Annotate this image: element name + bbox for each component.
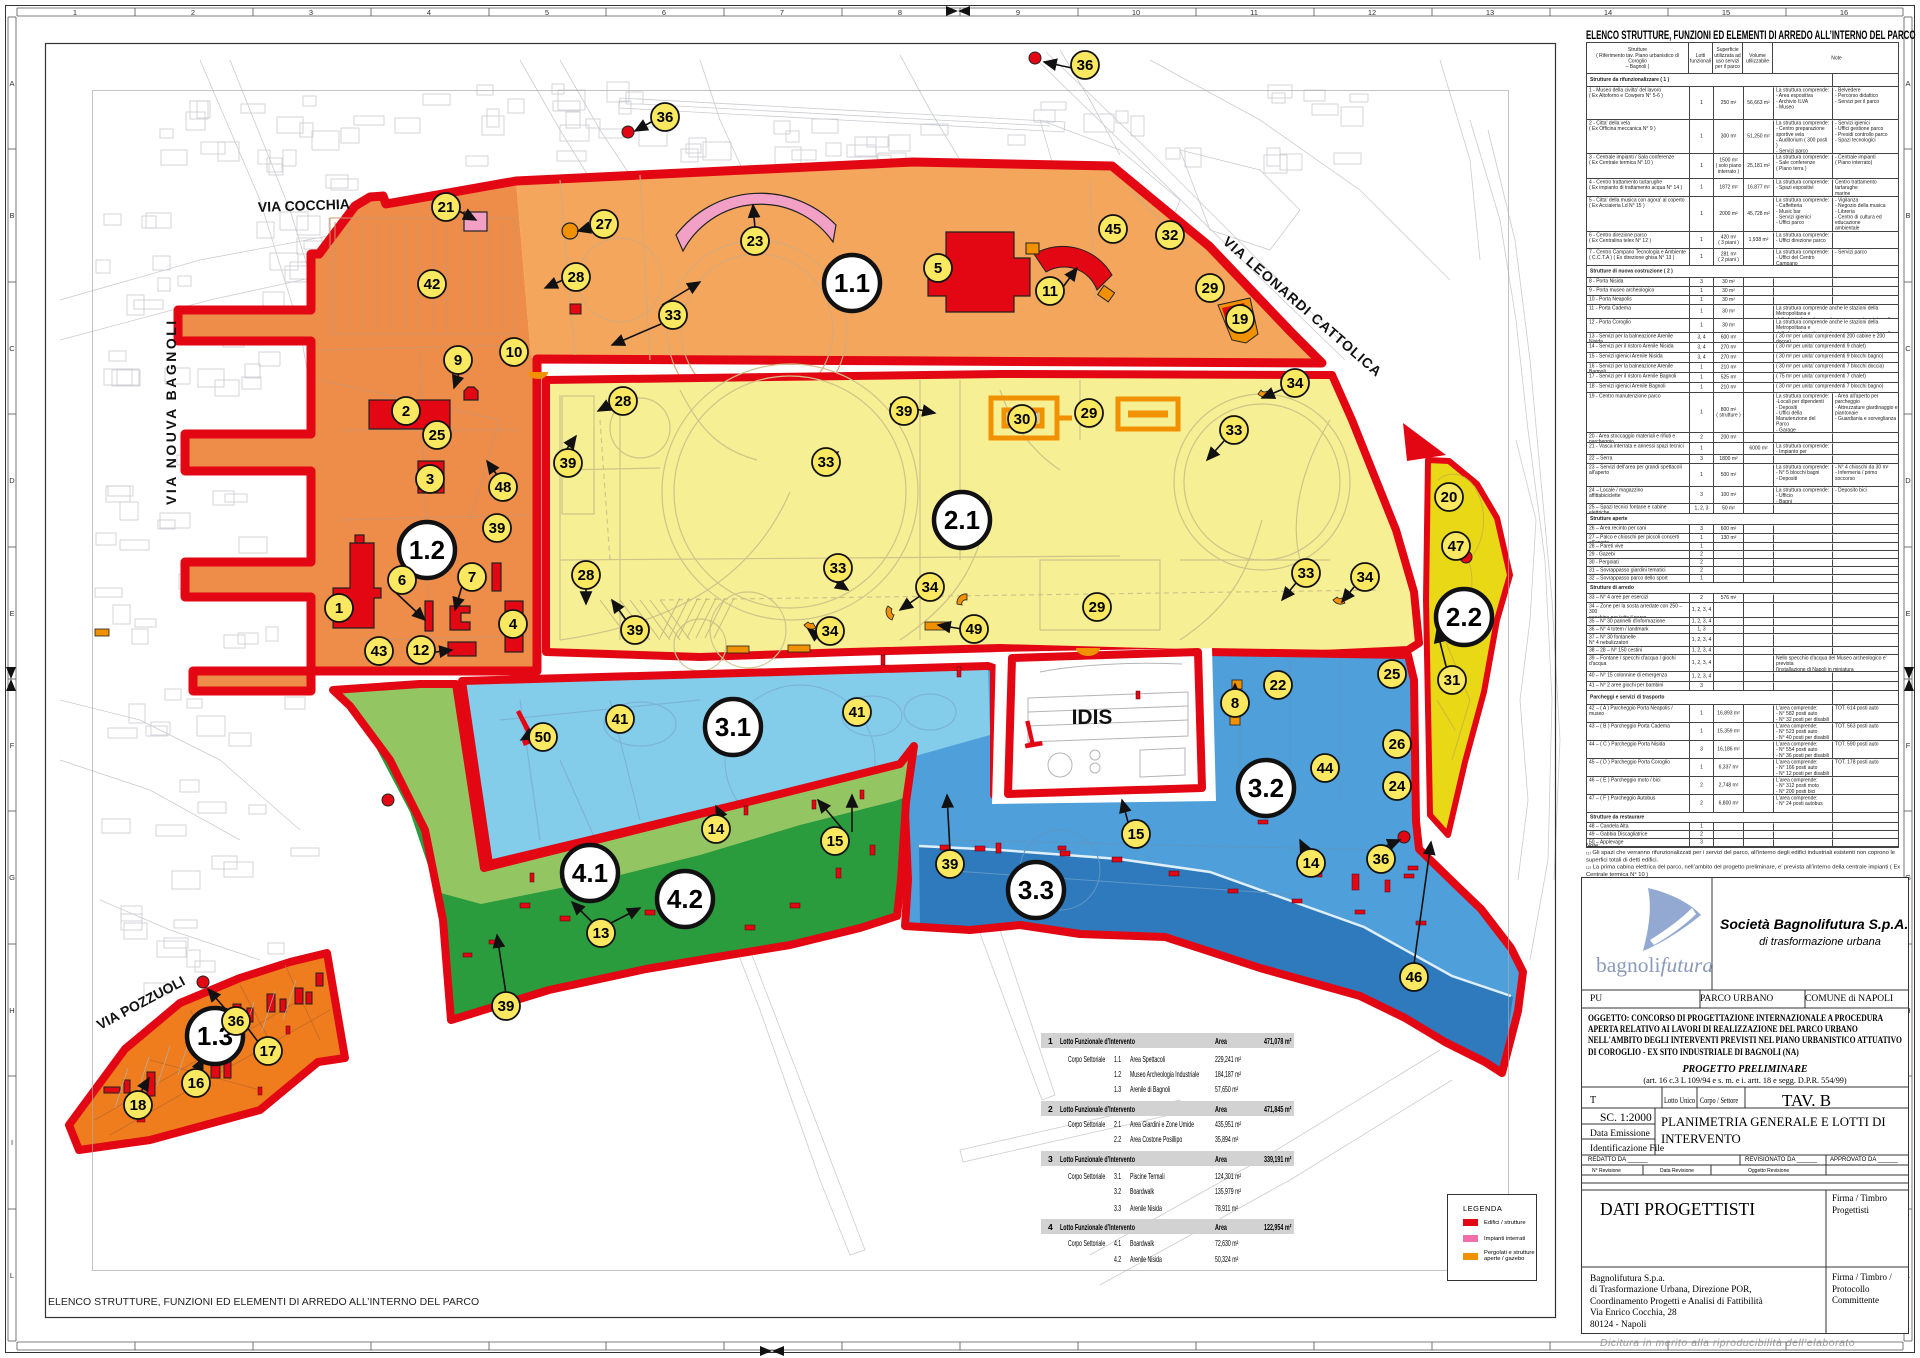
svg-text:L: L xyxy=(10,1271,14,1280)
svg-text:26: 26 xyxy=(1389,736,1406,753)
svg-text:29: 29 xyxy=(1081,405,1098,422)
svg-text:20: 20 xyxy=(1441,489,1458,506)
svg-text:33: 33 xyxy=(1226,422,1243,439)
svg-text:F: F xyxy=(10,741,15,750)
svg-text:H: H xyxy=(9,1006,14,1015)
svg-text:28: 28 xyxy=(578,567,595,584)
svg-text:28: 28 xyxy=(568,269,585,286)
svg-text:4.2: 4.2 xyxy=(667,884,703,914)
svg-text:45: 45 xyxy=(1105,221,1122,238)
svg-text:27: 27 xyxy=(596,216,613,233)
svg-text:14: 14 xyxy=(1303,855,1320,872)
svg-text:A: A xyxy=(9,79,14,88)
svg-text:10: 10 xyxy=(506,344,523,361)
svg-text:2.2: 2.2 xyxy=(1446,602,1482,632)
svg-text:33: 33 xyxy=(830,560,847,577)
svg-text:4.1: 4.1 xyxy=(572,858,608,888)
svg-text:E: E xyxy=(1905,609,1910,618)
svg-text:2.1: 2.1 xyxy=(944,505,980,535)
svg-text:C: C xyxy=(9,344,15,353)
svg-text:36: 36 xyxy=(1077,57,1094,74)
svg-text:4: 4 xyxy=(509,616,518,633)
svg-text:28: 28 xyxy=(615,393,632,410)
svg-text:A: A xyxy=(1905,79,1910,88)
svg-text:22: 22 xyxy=(1270,677,1287,694)
svg-text:44: 44 xyxy=(1317,760,1334,777)
svg-text:VIA NOUVA BAGNOLI: VIA NOUVA BAGNOLI xyxy=(163,318,179,505)
svg-text:2: 2 xyxy=(191,8,195,17)
svg-text:23: 23 xyxy=(747,233,764,250)
svg-text:1.1: 1.1 xyxy=(834,268,870,298)
svg-text:15: 15 xyxy=(1722,8,1730,17)
svg-text:19: 19 xyxy=(1232,311,1249,328)
svg-text:8: 8 xyxy=(898,8,902,17)
svg-text:6: 6 xyxy=(662,8,666,17)
svg-text:3.2: 3.2 xyxy=(1248,773,1284,803)
svg-text:7: 7 xyxy=(780,8,784,17)
svg-text:1: 1 xyxy=(73,8,77,17)
svg-text:18: 18 xyxy=(130,1097,147,1114)
svg-text:14: 14 xyxy=(708,821,725,838)
svg-text:3: 3 xyxy=(426,471,434,488)
svg-text:34: 34 xyxy=(1287,375,1304,392)
svg-text:47: 47 xyxy=(1448,538,1465,555)
svg-text:5: 5 xyxy=(934,260,942,277)
svg-text:21: 21 xyxy=(438,199,455,216)
svg-text:10: 10 xyxy=(1132,8,1140,17)
svg-text:39: 39 xyxy=(560,455,577,472)
svg-text:3.3: 3.3 xyxy=(1018,875,1054,905)
svg-text:25: 25 xyxy=(1384,666,1401,683)
svg-text:8: 8 xyxy=(1231,695,1239,712)
svg-text:34: 34 xyxy=(1357,569,1374,586)
svg-text:39: 39 xyxy=(489,520,506,537)
svg-text:E: E xyxy=(9,609,14,618)
svg-text:36: 36 xyxy=(1373,851,1390,868)
svg-text:42: 42 xyxy=(424,276,441,293)
svg-text:41: 41 xyxy=(849,704,866,721)
svg-text:12: 12 xyxy=(413,642,430,659)
svg-text:3.1: 3.1 xyxy=(715,712,751,742)
svg-text:1.2: 1.2 xyxy=(409,535,445,565)
svg-text:5: 5 xyxy=(545,8,549,17)
svg-text:G: G xyxy=(9,873,15,882)
svg-text:IDIS: IDIS xyxy=(1072,706,1113,729)
svg-text:D: D xyxy=(9,476,15,485)
svg-text:50: 50 xyxy=(535,729,552,746)
svg-text:7: 7 xyxy=(468,569,476,586)
svg-text:43: 43 xyxy=(371,643,388,660)
svg-text:12: 12 xyxy=(1368,8,1376,17)
svg-text:4: 4 xyxy=(427,8,431,17)
svg-text:15: 15 xyxy=(827,833,844,850)
svg-text:I: I xyxy=(11,1138,13,1147)
svg-text:9: 9 xyxy=(454,352,462,369)
svg-text:33: 33 xyxy=(818,454,835,471)
svg-text:B: B xyxy=(9,211,14,220)
svg-text:D: D xyxy=(1905,476,1911,485)
svg-text:3: 3 xyxy=(309,8,313,17)
svg-text:32: 32 xyxy=(1162,227,1179,244)
svg-text:11: 11 xyxy=(1250,8,1258,17)
svg-text:34: 34 xyxy=(922,579,939,596)
svg-text:17: 17 xyxy=(260,1043,277,1060)
svg-text:1: 1 xyxy=(335,600,343,617)
svg-text:14: 14 xyxy=(1604,8,1612,17)
svg-text:9: 9 xyxy=(1016,8,1020,17)
svg-text:F: F xyxy=(1906,741,1911,750)
svg-text:13: 13 xyxy=(1486,8,1494,17)
svg-text:2: 2 xyxy=(402,403,410,420)
svg-text:36: 36 xyxy=(228,1013,245,1030)
svg-text:39: 39 xyxy=(627,622,644,639)
svg-text:C: C xyxy=(1905,344,1911,353)
svg-text:25: 25 xyxy=(429,427,446,444)
svg-text:48: 48 xyxy=(495,479,512,496)
svg-text:36: 36 xyxy=(657,109,674,126)
svg-text:15: 15 xyxy=(1128,826,1145,843)
svg-text:39: 39 xyxy=(498,998,515,1015)
svg-text:6: 6 xyxy=(398,572,406,589)
svg-text:49: 49 xyxy=(966,621,983,638)
svg-text:39: 39 xyxy=(896,403,913,420)
svg-text:VIA COCCHIA: VIA COCCHIA xyxy=(258,196,351,215)
svg-text:24: 24 xyxy=(1389,778,1406,795)
svg-text:31: 31 xyxy=(1444,672,1461,689)
svg-text:11: 11 xyxy=(1042,283,1058,300)
svg-text:13: 13 xyxy=(593,925,610,942)
svg-text:16: 16 xyxy=(1840,8,1848,17)
svg-text:34: 34 xyxy=(822,623,839,640)
svg-text:33: 33 xyxy=(1298,565,1315,582)
svg-text:46: 46 xyxy=(1406,969,1423,986)
svg-text:B: B xyxy=(1905,211,1910,220)
svg-text:39: 39 xyxy=(942,856,959,873)
svg-text:29: 29 xyxy=(1089,599,1106,616)
svg-text:16: 16 xyxy=(188,1075,205,1092)
svg-text:30: 30 xyxy=(1014,411,1031,428)
svg-text:33: 33 xyxy=(665,307,682,324)
svg-text:41: 41 xyxy=(612,711,629,728)
svg-text:29: 29 xyxy=(1202,280,1219,297)
